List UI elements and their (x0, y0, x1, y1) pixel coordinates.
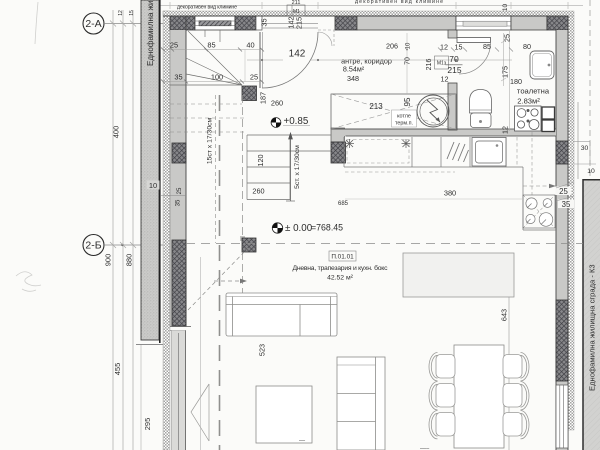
svg-text:25: 25 (559, 187, 568, 196)
svg-text:30: 30 (581, 145, 589, 152)
svg-text:180: 180 (510, 77, 522, 86)
svg-text:10: 10 (587, 168, 595, 175)
svg-text:25: 25 (170, 41, 178, 50)
svg-text:80: 80 (523, 42, 531, 51)
svg-text:12: 12 (441, 75, 449, 84)
svg-text:± 0.00: ± 0.00 (285, 223, 313, 234)
svg-text:685: 685 (338, 201, 349, 207)
svg-text:котле: котле (397, 114, 411, 120)
svg-text:142: 142 (289, 49, 306, 60)
svg-text:880: 880 (125, 254, 134, 267)
svg-text:10: 10 (406, 42, 412, 49)
svg-text:‒‒: ‒‒ (299, 438, 306, 444)
svg-text:‒‒‒: ‒‒‒ (420, 446, 430, 450)
svg-text:Еднофамилна жилищна сгра: Еднофамилна жилищна сгра (146, 0, 155, 66)
svg-text:М1з: М1з (437, 61, 447, 67)
svg-text:216: 216 (426, 59, 433, 71)
svg-text:12: 12 (501, 126, 510, 134)
svg-text:25: 25 (250, 73, 258, 82)
svg-text:15: 15 (129, 10, 135, 16)
svg-text:15ст х 17/30см: 15ст х 17/30см (207, 118, 214, 165)
svg-text:8.54м²: 8.54м² (343, 65, 365, 74)
svg-text:100: 100 (211, 73, 223, 82)
svg-text:2-А: 2-А (85, 18, 101, 30)
svg-text:348: 348 (347, 74, 359, 83)
svg-text:15: 15 (455, 43, 463, 52)
svg-text:260: 260 (252, 187, 264, 196)
svg-text:35: 35 (562, 200, 571, 209)
svg-text:40: 40 (246, 41, 254, 50)
svg-text:206: 206 (386, 42, 398, 51)
svg-text:380: 380 (444, 189, 456, 198)
svg-text:455: 455 (113, 363, 122, 376)
svg-text:70: 70 (405, 57, 412, 65)
svg-text:215: 215 (295, 17, 304, 29)
svg-text:5ст. х 17/30см: 5ст. х 17/30см (294, 145, 301, 189)
svg-text:400: 400 (112, 126, 121, 139)
svg-text:70: 70 (449, 54, 459, 64)
svg-text:213: 213 (369, 102, 383, 111)
svg-text:187: 187 (259, 92, 268, 104)
svg-text:295: 295 (143, 418, 152, 431)
svg-text:25: 25 (177, 187, 183, 194)
svg-text:10: 10 (502, 4, 509, 12)
svg-text:120: 120 (256, 154, 265, 166)
svg-text:85: 85 (207, 41, 215, 50)
svg-text:260: 260 (271, 99, 283, 108)
svg-text:523: 523 (258, 344, 267, 356)
svg-text:=768.45: =768.45 (311, 223, 343, 233)
svg-text:42.52 м²: 42.52 м² (327, 275, 354, 282)
svg-text:12: 12 (118, 10, 124, 16)
svg-text:35: 35 (260, 18, 269, 26)
svg-text:тоалетна: тоалетна (517, 87, 550, 96)
svg-text:терм.п.: терм.п. (395, 121, 413, 127)
svg-text:85: 85 (483, 42, 491, 51)
svg-text:10: 10 (149, 181, 157, 190)
svg-text:2-Б: 2-Б (85, 240, 101, 252)
svg-text:35: 35 (176, 199, 182, 206)
svg-text:25: 25 (503, 34, 512, 42)
svg-text:2.83м²: 2.83м² (517, 97, 540, 106)
svg-text:декоративен вид климине: декоративен вид климине (355, 0, 443, 5)
svg-text:35: 35 (174, 73, 182, 82)
svg-text:М1: М1 (293, 9, 300, 15)
svg-text:Еднофамилна жилищна сграда - К: Еднофамилна жилищна сграда - К3 (588, 264, 597, 391)
svg-text:12: 12 (440, 43, 448, 52)
svg-text:215: 215 (447, 65, 461, 75)
svg-text:175: 175 (501, 66, 510, 78)
svg-text:900: 900 (104, 254, 113, 267)
svg-text:П.01.01: П.01.01 (331, 254, 354, 261)
svg-text:Дневна, трапезария и кухн. бок: Дневна, трапезария и кухн. бокс (293, 264, 389, 272)
svg-text:декоративен вид климине: декоративен вид климине (177, 5, 237, 11)
svg-text:643: 643 (500, 309, 509, 321)
svg-text:95: 95 (403, 97, 412, 106)
